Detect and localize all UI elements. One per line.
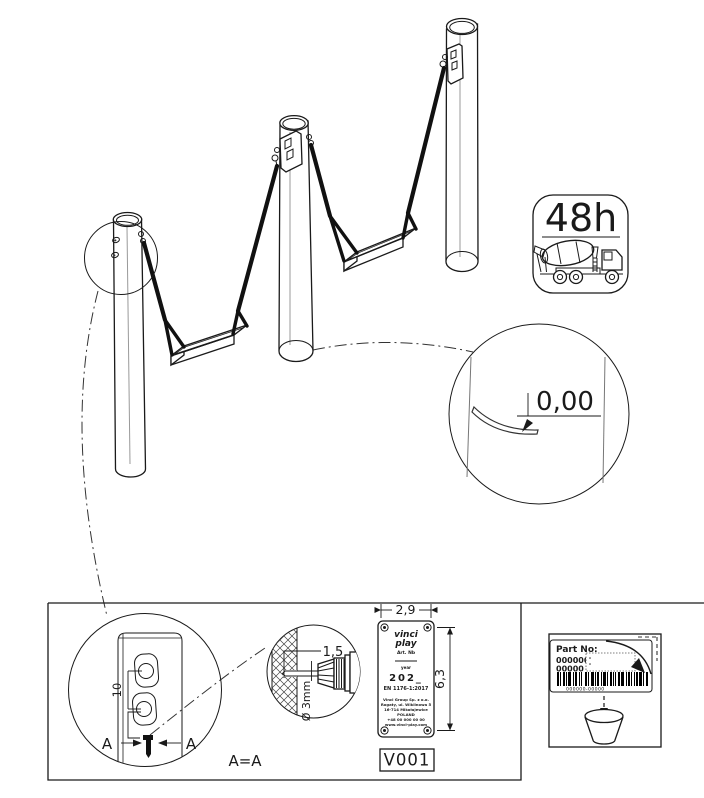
plate-year-value: 202_ [389,673,423,684]
drill-depth-value: 1,5 [323,645,344,660]
svg-text:www.vinci-play.com: www.vinci-play.com [385,722,427,727]
concrete-mixer-truck-icon [534,237,623,284]
barcode-caption: 000000-00000 [566,687,605,693]
plate-art-no-label: Art. Nb [397,650,416,656]
plate-standard: EN 1176-1:2017 [384,686,429,692]
plate-width-value: 2,9 [396,602,416,617]
hole-spacing-dimension: 10 [110,671,142,738]
bottom-detail-frame: 10 A A A=A [48,602,704,780]
plate-year-label: year [401,665,411,670]
badge-48h: 48h [533,195,628,293]
assembly-drawing-page: 0,00 48h [0,0,704,798]
badge-48h-label: 48h [545,196,617,240]
drill-diameter-value: Ø 3mm [300,681,313,722]
plate-height-value: 6,3 [432,669,447,689]
zero-level-dimension: 0,00 [517,387,601,432]
section-arrow-a-left: A [102,735,113,753]
zero-level-callout: 0,00 [449,324,629,504]
leader-line-post-to-level-detail [313,342,473,352]
version-label: V001 [384,751,431,770]
post-hole-detail: 10 A A [69,614,222,771]
peel-corner-outline [638,637,657,661]
drill-diameter-dimension: Ø 3mm [300,661,313,721]
plate-height-dimension: 6,3 [432,628,455,731]
svg-text:play: play [394,639,417,649]
part-no-sticker: Part No: 000000- 00000 000000-00000 [550,637,657,693]
technical-drawing-canvas: 0,00 48h [0,0,704,798]
leader-line-post-to-hole-detail [82,291,107,616]
rope-right-post-to-beam2 [408,68,444,213]
rope-middle-post-to-beam1 [238,166,277,311]
zero-level-value: 0,00 [536,387,594,417]
type-label-plate: vinci play Art. Nb year 202_ EN 1176-1:2… [375,602,456,737]
rope-left-post-to-beam1 [144,243,165,320]
version-box: V001 [380,749,434,771]
screw [143,735,153,758]
hole-spacing-value: 10 [110,683,124,698]
post-hole-top [134,653,159,688]
leader-line-hole-to-drill-detail [150,646,268,735]
main-isometric-drawing [85,19,479,478]
drill-detail: 1,5 Ø 3mm [267,624,362,721]
plate-logo: vinci play [394,630,419,649]
part-no-sticker-panel: Part No: 000000- 00000 000000-00000 [549,634,661,747]
bucket-icon [585,710,623,745]
barcode [557,672,648,686]
section-arrow-a-right: A [186,735,197,753]
post-left [113,213,145,478]
plate-width-dimension: 2,9 [375,602,438,618]
section-label: A=A [228,752,262,770]
sticker-blank-field [586,653,635,671]
plate-address: Vinci Group Sp. z o.o. Rogaty, ul. Wikli… [381,697,432,727]
rope-middle-post-to-beam2 [311,145,330,216]
